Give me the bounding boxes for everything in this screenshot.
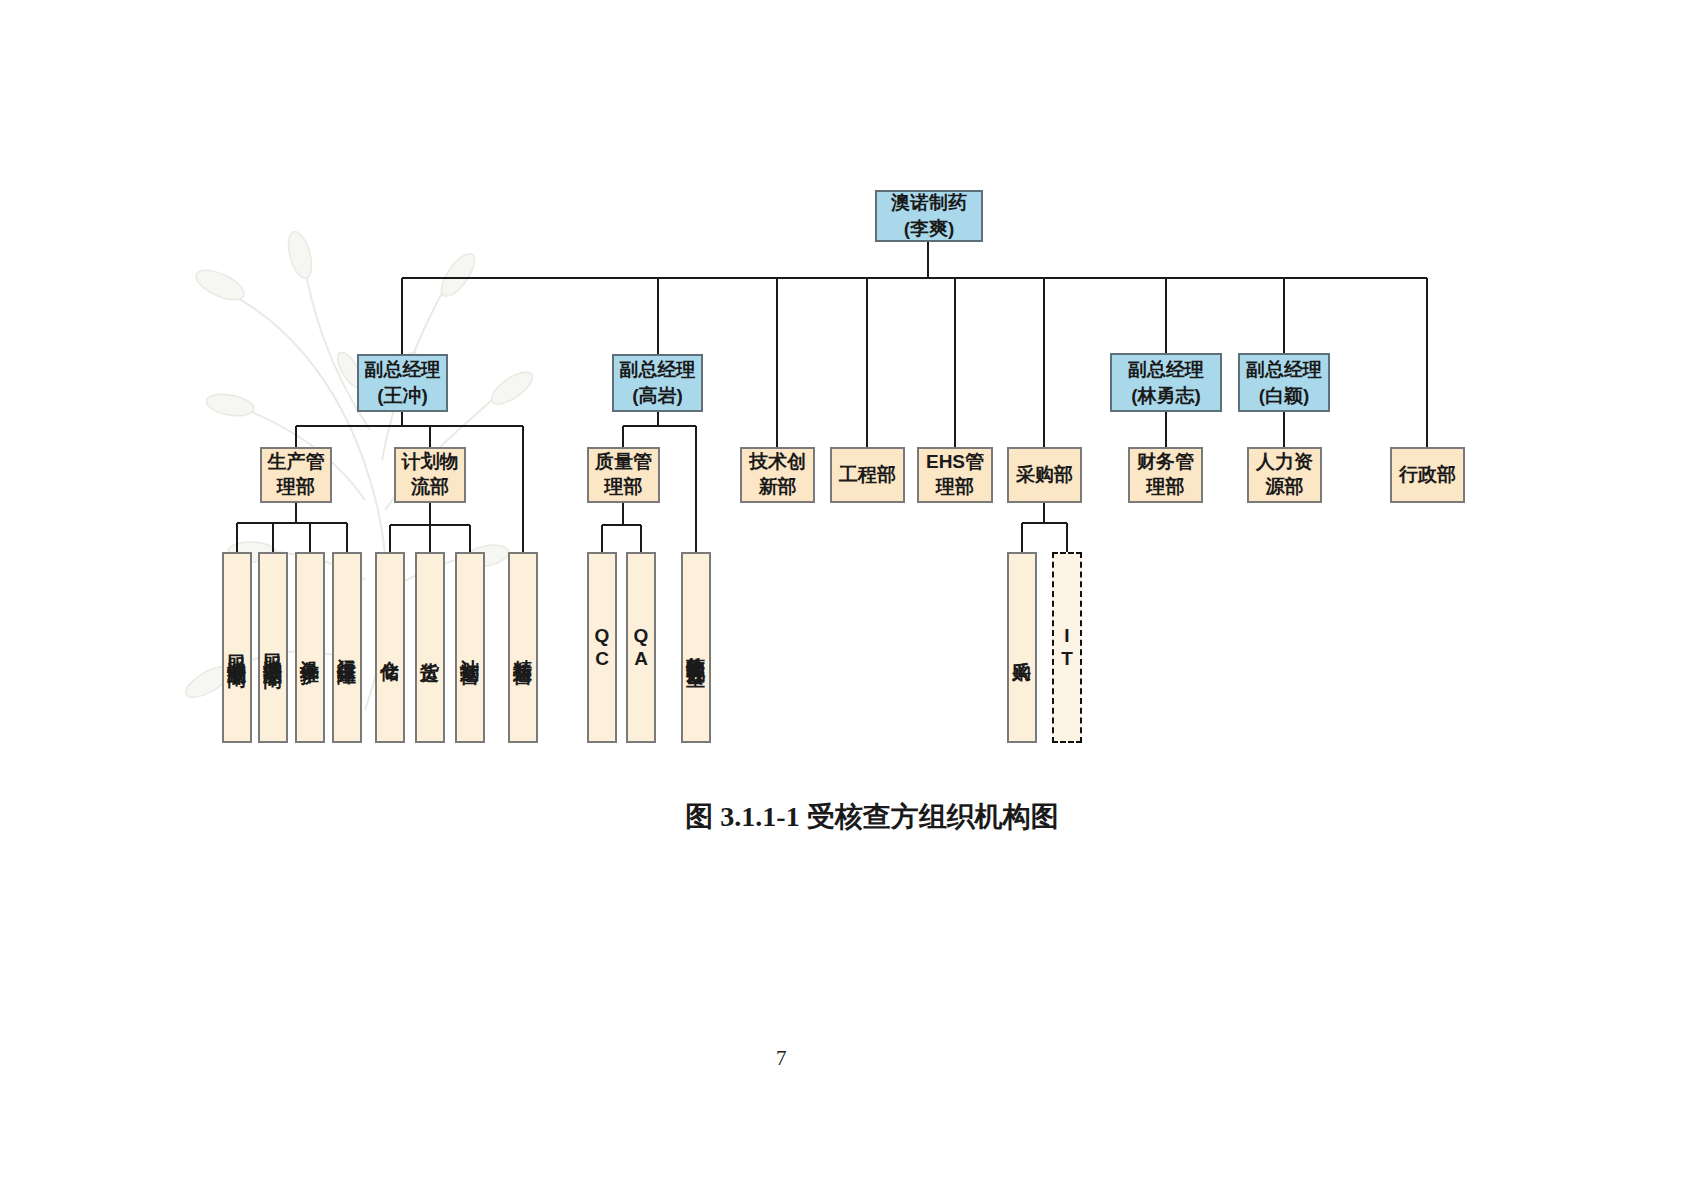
node-unit-purchasing: 采购 <box>1007 552 1037 743</box>
node-unit-planning-operations: 计划运营 <box>455 552 485 743</box>
vp-person: (高岩) <box>632 383 683 409</box>
dept-label: 财务管理部 <box>1133 450 1198 499</box>
unit-label: 药物警戒办公室 <box>687 641 706 655</box>
node-vp-baiying: 副总经理 (白颖) <box>1238 353 1330 412</box>
node-vp-gaoyan: 副总经理 (高岩) <box>612 354 703 412</box>
document-page: 澳诺制药 (李爽) 副总经理 (王冲) 副总经理 (高岩) 副总经理 (林勇志)… <box>0 0 1684 1191</box>
node-dept-human-resources: 人力资源部 <box>1247 447 1322 503</box>
node-dept-production-mgmt: 生产管理部 <box>260 447 332 503</box>
dept-label: 采购部 <box>1016 463 1073 488</box>
node-dept-tech-innovation: 技术创新部 <box>740 447 815 503</box>
vp-title: 副总经理 <box>620 357 696 383</box>
unit-label: QC <box>593 625 612 671</box>
node-dept-quality-mgmt: 质量管理部 <box>587 447 660 503</box>
vp-person: (林勇志) <box>1131 383 1201 409</box>
node-unit-freight: 货运 <box>415 552 445 743</box>
vp-title: 副总经理 <box>1246 357 1322 383</box>
dept-label: EHS管理部 <box>922 450 988 499</box>
unit-label: QA <box>632 625 651 671</box>
connector-lines <box>0 0 1684 1191</box>
unit-label: 仓储 <box>381 646 400 650</box>
vp-person: (王冲) <box>377 383 428 409</box>
node-dept-administration: 行政部 <box>1390 447 1465 503</box>
vp-title: 副总经理 <box>365 357 441 383</box>
unit-label: 精益运营 <box>514 644 533 652</box>
node-dept-procurement: 采购部 <box>1007 447 1082 503</box>
node-unit-qc: QC <box>587 552 617 743</box>
unit-label: 口服溶液剂车间 <box>228 641 247 655</box>
unit-label: 计划运营 <box>461 644 480 652</box>
unit-label: 设备维护 <box>301 644 320 652</box>
dept-label: 计划物流部 <box>399 450 461 499</box>
node-unit-warehousing: 仓储 <box>375 552 405 743</box>
unit-label: IT <box>1058 625 1077 671</box>
node-unit-oral-solution-workshop-1: 口服溶液剂车间 <box>222 552 252 743</box>
unit-label: 口服溶液剂二车间 <box>264 640 283 656</box>
node-dept-ehs-mgmt: EHS管理部 <box>917 447 993 503</box>
dept-label: 工程部 <box>839 463 896 488</box>
node-unit-lean-operations: 精益运营 <box>508 552 538 743</box>
root-person: (李爽) <box>904 216 955 242</box>
node-unit-oral-solution-workshop-2: 口服溶液剂二车间 <box>258 552 288 743</box>
dept-label: 质量管理部 <box>592 450 655 499</box>
node-unit-qa: QA <box>626 552 656 743</box>
dept-label: 人力资源部 <box>1252 450 1317 499</box>
unit-label: 运行保障组 <box>338 643 357 653</box>
node-unit-it: IT <box>1052 552 1082 743</box>
dept-label: 生产管理部 <box>265 450 327 499</box>
vp-title: 副总经理 <box>1128 357 1204 383</box>
dept-label: 技术创新部 <box>745 450 810 499</box>
page-number: 7 <box>776 1046 787 1071</box>
node-unit-pharmacovigilance-office: 药物警戒办公室 <box>681 552 711 743</box>
node-dept-planning-logistics: 计划物流部 <box>394 447 466 503</box>
node-dept-finance-mgmt: 财务管理部 <box>1128 447 1203 503</box>
root-title: 澳诺制药 <box>891 190 967 216</box>
unit-label: 货运 <box>421 646 440 650</box>
node-vp-linyongzhi: 副总经理 (林勇志) <box>1110 353 1222 412</box>
node-root-company: 澳诺制药 (李爽) <box>875 190 983 242</box>
node-unit-equipment-maintenance: 设备维护 <box>295 552 325 743</box>
vp-person: (白颖) <box>1259 383 1310 409</box>
unit-label: 采购 <box>1013 646 1032 650</box>
node-vp-wangchong: 副总经理 (王冲) <box>357 354 448 412</box>
node-dept-engineering: 工程部 <box>830 447 905 503</box>
dept-label: 行政部 <box>1399 463 1456 488</box>
figure-caption: 图 3.1.1-1 受核查方组织机构图 <box>685 798 1058 836</box>
node-unit-operation-support: 运行保障组 <box>332 552 362 743</box>
